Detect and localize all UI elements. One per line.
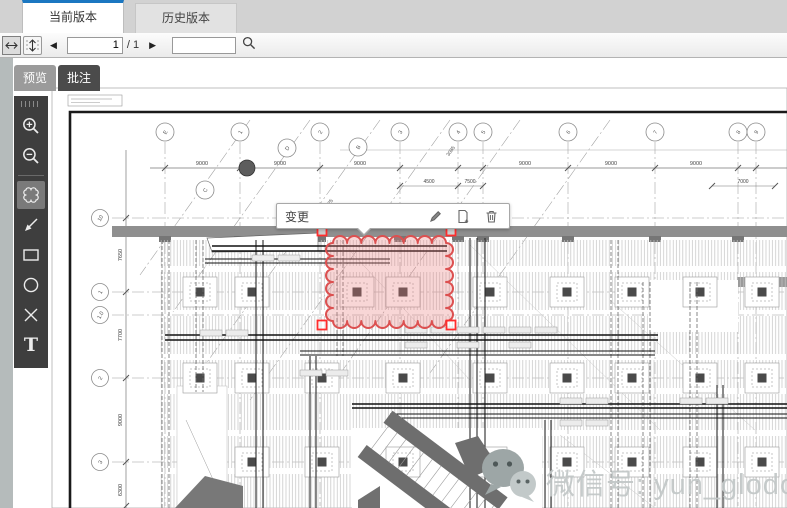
page-total-label: / 1 <box>127 39 139 51</box>
search-button[interactable] <box>242 36 256 55</box>
resize-handle[interactable] <box>318 321 327 330</box>
rectangle-icon <box>21 245 41 265</box>
search-icon <box>242 36 256 50</box>
delete-icon[interactable] <box>484 209 499 224</box>
revision-cloud-icon <box>21 185 41 205</box>
tab-current-version[interactable]: 当前版本 <box>22 0 124 33</box>
arrow-icon <box>21 215 41 235</box>
svg-text:9000: 9000 <box>690 161 702 167</box>
revision-cloud[interactable] <box>326 236 453 328</box>
arrow-tool[interactable] <box>17 211 45 239</box>
zoom-in-icon <box>21 116 41 136</box>
zoom-out-icon <box>21 146 41 166</box>
canvas-left-gutter <box>0 58 13 508</box>
viewer-mode-tabs: 预览 批注 <box>14 65 100 91</box>
fit-height-icon <box>26 39 39 52</box>
annotation-tooltip: 变更 <box>276 203 510 229</box>
svg-text:6300: 6300 <box>118 484 124 496</box>
palette-drag-handle[interactable] <box>21 101 41 107</box>
app-window: 当前版本 历史版本 ◀ / 1 ▶ <box>0 0 787 508</box>
text-tool[interactable]: T <box>17 331 45 359</box>
svg-text:9000: 9000 <box>274 161 286 167</box>
svg-text:7700: 7700 <box>118 329 124 341</box>
export-icon[interactable] <box>456 209 471 224</box>
next-page-button[interactable]: ▶ <box>149 40 156 51</box>
svg-text:7500: 7500 <box>464 179 475 185</box>
fit-width-button[interactable] <box>2 36 21 55</box>
ellipse-icon <box>21 275 41 295</box>
tab-preview[interactable]: 预览 <box>14 65 56 91</box>
resize-handle[interactable] <box>447 321 456 330</box>
ellipse-tool[interactable] <box>17 271 45 299</box>
tab-history-version[interactable]: 历史版本 <box>135 3 237 33</box>
version-tabbar: 当前版本 历史版本 <box>0 0 787 33</box>
annotation-title: 变更 <box>277 208 428 225</box>
fit-height-button[interactable] <box>23 36 42 55</box>
viewer-toolbar: ◀ / 1 ▶ <box>0 33 787 58</box>
drawing-canvas[interactable]: E123456789BCD1011.0239000900090009000900… <box>0 58 787 508</box>
cloud-annotation[interactable] <box>326 236 453 328</box>
tab-annotate[interactable]: 批注 <box>58 65 100 91</box>
prev-page-button[interactable]: ◀ <box>50 40 57 51</box>
edit-icon[interactable] <box>428 209 443 224</box>
search-input[interactable] <box>172 37 236 54</box>
svg-text:9000: 9000 <box>196 161 208 167</box>
page-number-input[interactable] <box>67 37 123 54</box>
svg-text:7000: 7000 <box>737 179 748 185</box>
zoom-in-tool[interactable] <box>17 112 45 140</box>
svg-text:9000: 9000 <box>118 414 124 426</box>
text-tool-glyph: T <box>24 334 38 356</box>
palette-divider <box>18 175 44 176</box>
zoom-out-tool[interactable] <box>17 142 45 170</box>
svg-text:9000: 9000 <box>605 161 617 167</box>
viewer-main: E123456789BCD1011.0239000900090009000900… <box>0 58 787 508</box>
fit-width-icon <box>5 39 18 52</box>
cloud-select-tool[interactable] <box>17 181 45 209</box>
rectangle-tool[interactable] <box>17 241 45 269</box>
svg-text:9000: 9000 <box>519 161 531 167</box>
svg-text:4500: 4500 <box>423 179 434 185</box>
svg-text:7650: 7650 <box>118 249 124 261</box>
annotation-tool-palette: T <box>14 96 48 368</box>
cross-icon <box>21 305 41 325</box>
svg-text:9000: 9000 <box>354 161 366 167</box>
cross-tool[interactable] <box>17 301 45 329</box>
